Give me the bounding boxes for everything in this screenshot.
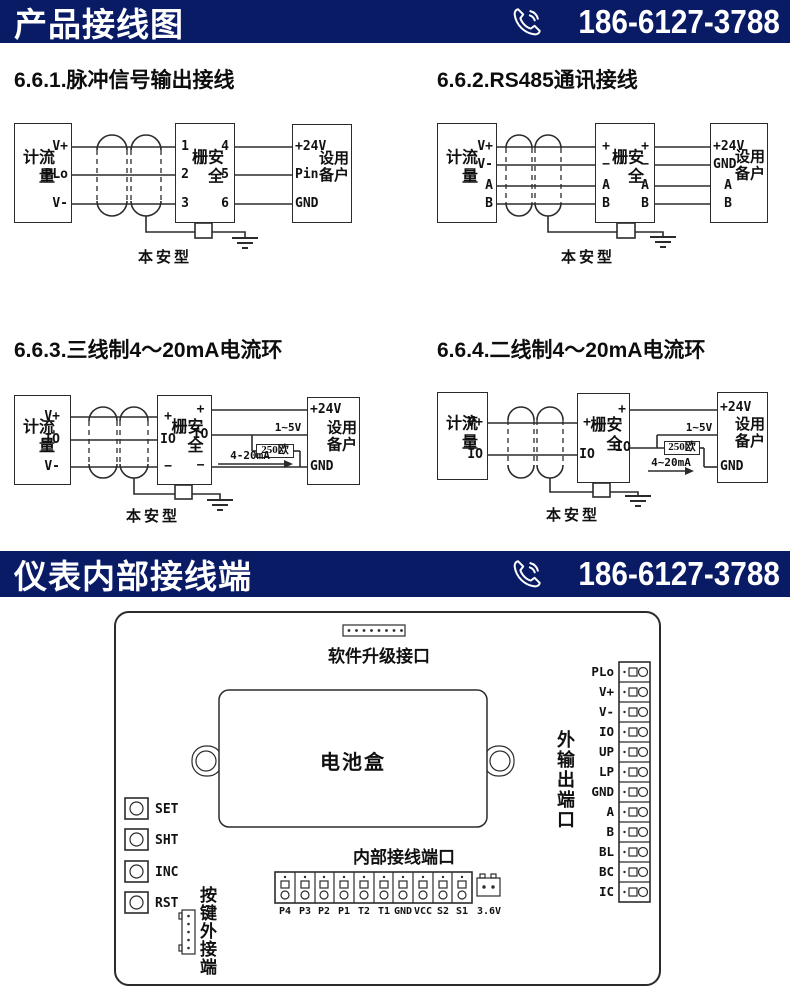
terminal-label: 5 (219, 168, 231, 182)
barrier-foot (175, 485, 192, 499)
terminal-label: GND (720, 460, 762, 474)
sht-button-label: SHT (155, 833, 178, 848)
intrinsic-safe-label: 本安型 (546, 504, 598, 525)
output-terminal-label: PLo (576, 664, 614, 679)
terminal-label: IO (191, 428, 210, 442)
keypad-port-label: 按键外接端 (198, 886, 215, 976)
terminal-label: +24V (295, 140, 337, 154)
output-terminal-label: LP (576, 764, 614, 779)
internal-board-diagram: 软件升级接口 电池盒 SET SHT INC RST 按键外接端 内部接线端口 … (0, 600, 790, 989)
section-title: 仪表内部接线端 (0, 550, 252, 598)
terminal-label: 2 (179, 168, 191, 182)
terminal-label: B (465, 197, 493, 211)
set-button-label: SET (155, 802, 178, 817)
user-device-label: 用户设备 (733, 415, 763, 460)
output-terminal-label: V+ (576, 684, 614, 699)
voltage-label: 1~5V (681, 422, 717, 434)
diagram-pulse-output: 流量计 V+ PLo V- 安全栅 1 2 3 4 5 6 用户设备 +24V … (0, 95, 395, 285)
flowmeter-box: 流量计 (437, 392, 488, 480)
output-terminal-label: V- (576, 704, 614, 719)
terminal-label: +24V (310, 403, 352, 417)
heading-6-6-4: 6.6.4.二线制4～20mA电流环 (437, 334, 705, 364)
terminal-label: +24V (713, 140, 753, 154)
barrier-foot (593, 483, 610, 497)
terminal-label: Pin (295, 168, 337, 182)
output-terminal-label: A (576, 804, 614, 819)
terminal-label: GND (310, 460, 352, 474)
terminal-label: A (638, 179, 652, 193)
phone-group: 186-6127-3788 (510, 551, 780, 597)
phone-icon (510, 5, 544, 39)
ground-symbol (232, 238, 258, 248)
user-device-label: 用户设备 (325, 420, 355, 463)
terminal-label: 3 (179, 197, 191, 211)
terminal-label: 4 (219, 140, 231, 154)
heading-6-6-2: 6.6.2.RS485通讯接线 (437, 64, 638, 94)
heading-6-6-1: 6.6.1.脉冲信号输出接线 (14, 64, 235, 94)
current-label: 4-20mA (216, 450, 284, 462)
output-terminal-label: B (576, 824, 614, 839)
internal-port-label: 内部接线端口 (345, 843, 463, 868)
ground-symbol (625, 496, 651, 506)
battery-label: 电池盒 (219, 746, 487, 775)
terminal-label: GND (295, 197, 337, 211)
output-terminal-label: IC (576, 884, 614, 899)
terminal-label: IO (32, 433, 60, 447)
terminal-label: 6 (219, 197, 231, 211)
battery-conn-label: 3.6V (473, 906, 505, 917)
terminal-label: V+ (40, 140, 68, 154)
terminal-label: − (638, 158, 652, 172)
terminal-label: + (191, 403, 210, 417)
safety-barrier-label: 安全栅 (189, 149, 221, 198)
terminal-label: − (599, 158, 613, 172)
terminal-label: IO (455, 448, 483, 462)
terminal-label: IO (614, 441, 632, 455)
resistor-250ohm: 250欧 (664, 441, 700, 455)
heading-6-6-3: 6.6.3.三线制4～20mA电流环 (14, 334, 282, 364)
intrinsic-safe-label: 本安型 (138, 246, 190, 267)
top-banner: 产品接线图 186-6127-3788 (0, 0, 790, 43)
rst-button-label: RST (155, 896, 178, 911)
barrier-foot (195, 223, 212, 238)
terminal-label: V- (465, 158, 493, 172)
terminal-label: A (715, 179, 741, 193)
output-terminal-label: BC (576, 864, 614, 879)
diagram-rs485: 流量计 V+ V- A B 安全栅 + − A B + − A B 用户设备 +… (395, 95, 790, 285)
shielded-cable (508, 407, 563, 478)
terminal-label: + (614, 403, 630, 417)
intrinsic-safe-label: 本安型 (561, 246, 613, 267)
terminal-label: + (638, 140, 652, 154)
current-label: 4~20mA (645, 457, 697, 469)
safety-barrier-label: 安全栅 (609, 149, 641, 198)
terminal-label: B (638, 197, 652, 211)
output-port-label: 外输出端口 (556, 730, 574, 830)
terminal-label: V+ (455, 416, 483, 430)
output-terminal-label: UP (576, 744, 614, 759)
internal-terminals-banner: 仪表内部接线端 186-6127-3788 (0, 551, 790, 597)
terminal-label: + (599, 140, 613, 154)
terminal-label: B (715, 197, 741, 211)
terminal-label: A (599, 179, 613, 193)
terminal-label: + (159, 410, 177, 424)
terminal-label: V+ (32, 410, 60, 424)
ground-symbol (650, 237, 676, 247)
terminal-label: IO (159, 433, 177, 447)
intrinsic-safe-label: 本安型 (126, 505, 178, 526)
barrier-foot (617, 223, 635, 238)
terminal-label: +24V (720, 401, 762, 415)
output-terminal-label: IO (576, 724, 614, 739)
voltage-label: 1~5V (270, 422, 306, 434)
output-terminal-label: BL (576, 844, 614, 859)
terminal-label: 1 (179, 140, 191, 154)
inc-button-label: INC (155, 865, 178, 880)
terminal-label: B (599, 197, 613, 211)
terminal-label: A (465, 179, 493, 193)
phone-group: 186-6127-3788 (510, 0, 780, 43)
output-terminal-label: GND (576, 784, 614, 799)
phone-number: 186-6127-3788 (579, 555, 780, 593)
terminal-label: PLo (40, 168, 68, 182)
terminal-label: V- (40, 197, 68, 211)
terminal-label: V- (32, 460, 60, 474)
ground-symbol (207, 500, 233, 510)
terminal-label: − (191, 459, 210, 473)
page-title: 产品接线图 (0, 0, 184, 46)
terminal-label: IO (579, 448, 595, 462)
terminal-label: V+ (465, 140, 493, 154)
internal-terminal-label: S1 (449, 906, 475, 917)
terminal-label: GND (713, 158, 753, 172)
product-wiring-page: 产品接线图 186-6127-3788 6.6.1.脉冲信号输出接线 6.6.2… (0, 0, 790, 989)
diagram-2wire-420ma: 流量计 V+ IO 安全栅 + IO + IO 用户设备 +24V GND 1~… (395, 365, 790, 540)
upgrade-port-label: 软件升级接口 (323, 642, 435, 667)
phone-icon (510, 557, 544, 591)
diagram-3wire-420ma: 流量计 V+ IO V- 安全栅 + IO − + IO − 用户设备 +24V… (0, 365, 395, 540)
terminal-label: + (579, 416, 595, 430)
terminal-label: − (159, 460, 177, 474)
phone-number: 186-6127-3788 (579, 3, 780, 41)
